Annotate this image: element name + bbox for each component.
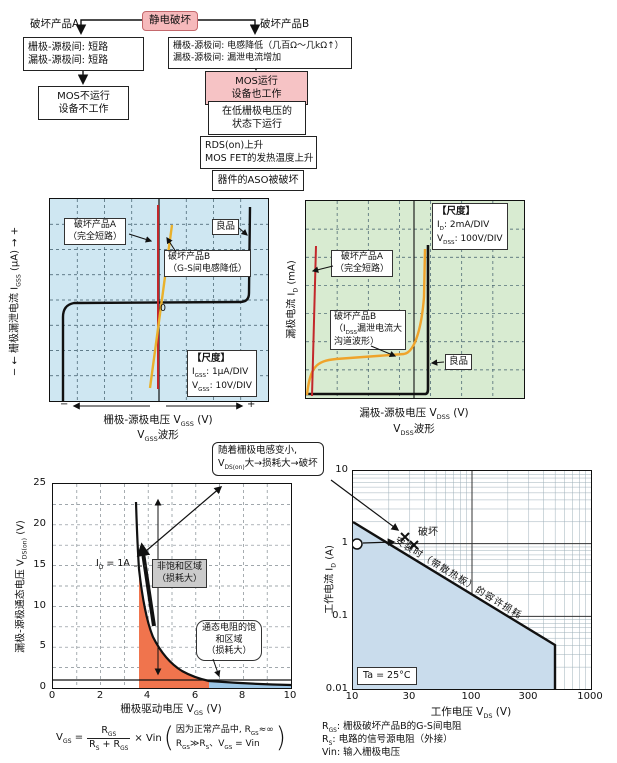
x-tick: 0 bbox=[42, 690, 62, 701]
scale-row2: VDSS: 100V/DIV bbox=[437, 233, 503, 247]
drain-waveform-label: VDSS波形 bbox=[305, 421, 523, 437]
y-tick: 10 bbox=[322, 464, 348, 475]
gate-product-b-label: 破坏产品B （G-S间电感降低） bbox=[164, 250, 251, 277]
gate-zero-label: 0 bbox=[160, 303, 166, 314]
drain-scale-box: 【尺度】 ID: 2mA/DIV VDSS: 100V/DIV bbox=[432, 203, 508, 250]
soa-y-axis-label: 工作电流 ID (A) bbox=[321, 480, 338, 680]
x-tick: 10 bbox=[337, 691, 367, 702]
flow-box-a1-line1: 栅极-源极间: 短路 bbox=[28, 41, 139, 54]
paren-open: ( bbox=[164, 726, 174, 751]
vgs-formula: VGS = RGS RS + RGS × Vin ( 因为正常产品中, RGS≈… bbox=[56, 724, 288, 753]
gate-x-axis-label: 栅极-源极电压 VGSS (V) bbox=[49, 412, 267, 428]
x-tick: 10 bbox=[280, 690, 300, 701]
x-tick: 30 bbox=[394, 691, 424, 702]
x-tick: 300 bbox=[513, 691, 543, 702]
x-tick: 100 bbox=[456, 691, 486, 702]
figure-esd-damage-mosfet: { "flowchart": { "trigger": "静电破坏", "bra… bbox=[0, 0, 617, 763]
flow-box-b1: 栅极-源极间: 电感降低（几百Ω～几kΩ↑） 漏极-源极间: 漏泄电流增加 bbox=[168, 37, 352, 69]
x-tick: 6 bbox=[185, 690, 205, 701]
flow-box-b1-line1: 栅极-源极间: 电感降低（几百Ω～几kΩ↑） bbox=[173, 41, 347, 53]
gate-product-a-line2: （完全短路） bbox=[68, 232, 122, 244]
flow-box-b5-line1: 器件的ASO被破坏 bbox=[217, 174, 299, 187]
formula-fraction: RGS RS + RGS bbox=[87, 725, 130, 752]
gate-product-b-line1: 破坏产品B bbox=[168, 252, 247, 264]
scale-title: 【尺度】 bbox=[437, 206, 503, 219]
gate-waveform-label: VGSS波形 bbox=[49, 427, 267, 443]
formula-rhs: × Vin bbox=[134, 733, 161, 744]
drain-product-a-line1: 破坏产品A bbox=[335, 252, 389, 264]
loss-callout: 随着栅极电感变小, VDS(on)大→损耗大→破坏 bbox=[212, 442, 324, 476]
y-tick: 10 bbox=[30, 600, 46, 611]
legend-vin: Vin: 输入栅极电压 bbox=[322, 744, 400, 760]
drain-good-label: 良品 bbox=[445, 354, 472, 370]
scale-title: 【尺度】 bbox=[192, 353, 252, 366]
branch-b-label: 破坏产品B bbox=[260, 16, 309, 31]
flow-box-a1-line2: 漏极-源极间: 短路 bbox=[28, 54, 139, 67]
scale-row1: IGSS: 1μA/DIV bbox=[192, 366, 252, 380]
y-tick: 15 bbox=[30, 559, 46, 570]
scale-row1: ID: 2mA/DIV bbox=[437, 219, 503, 233]
drain-product-a-line2: （完全短路） bbox=[335, 264, 389, 276]
branch-a-label: 破坏产品A bbox=[30, 16, 79, 31]
flow-box-a1: 栅极-源极间: 短路 漏极-源极间: 短路 bbox=[23, 37, 144, 71]
gate-y-axis-label: − ← 栅极漏泄电流 IGSS (μA) → + bbox=[6, 202, 23, 402]
flow-box-b5: 器件的ASO被破坏 bbox=[212, 170, 304, 191]
gate-scale-box: 【尺度】 IGSS: 1μA/DIV VGSS: 10V/DIV bbox=[187, 350, 257, 397]
soa-region-fill bbox=[353, 522, 555, 689]
drain-x-axis-label: 漏极-源极电压 VDSS (V) bbox=[305, 405, 523, 421]
product-a-trace bbox=[312, 246, 316, 396]
y-tick: 25 bbox=[30, 477, 46, 488]
gate-product-a-line1: 破坏产品A bbox=[68, 220, 122, 232]
id-1a-label: ID = 1A bbox=[96, 558, 130, 571]
gate-product-a-label: 破坏产品A （完全短路） bbox=[64, 218, 126, 245]
gate-product-b-line2: （G-S间电感降低） bbox=[168, 264, 247, 276]
flow-trigger-box: 静电破坏 bbox=[142, 11, 198, 31]
formula-notes: 因为正常产品中, RGS≈∞ RGS≫RS、VGS = Vin bbox=[176, 724, 274, 753]
vdson-x-axis-label: 栅极驱动电压 VGS (V) bbox=[52, 701, 290, 717]
operating-point-marker bbox=[353, 539, 362, 549]
flow-box-b1-line2: 漏极-源极间: 漏泄电流增加 bbox=[173, 53, 347, 65]
drain-product-b-line1: 破坏产品B bbox=[334, 312, 402, 324]
soa-ta-label: Ta = 25°C bbox=[357, 667, 417, 685]
x-tick: 8 bbox=[232, 690, 252, 701]
soa-limit-line bbox=[353, 522, 555, 689]
flow-box-a2-line1: MOS不运行 bbox=[43, 90, 124, 103]
drain-y-axis-label: 漏极电流 ID (mA) bbox=[283, 200, 300, 400]
y-tick: 5 bbox=[30, 640, 46, 651]
flow-box-b4-line2: MOS FET的发热温度上升 bbox=[205, 153, 312, 166]
flow-box-b2-line2: 设备也工作 bbox=[210, 88, 303, 101]
saturation-region-fill bbox=[209, 681, 291, 688]
y-tick: 20 bbox=[30, 518, 46, 529]
drain-product-b-line3: 沟道波形） bbox=[334, 337, 402, 349]
flow-box-b3-line1: 在低栅极电压的 bbox=[213, 105, 301, 118]
gate-good-label: 良品 bbox=[212, 219, 239, 235]
unsaturated-region-label: 非饱和区域 （损耗大） bbox=[152, 559, 207, 588]
flow-box-b4: RDS(on)上升 MOS FET的发热温度上升 bbox=[200, 136, 317, 169]
flow-box-b2-line1: MOS运行 bbox=[210, 75, 303, 88]
drain-product-a-label: 破坏产品A （完全短路） bbox=[331, 250, 393, 277]
flow-box-a2-line2: 设备不工作 bbox=[43, 103, 124, 116]
gate-x-minus: − bbox=[60, 399, 68, 410]
soa-break-label: 破坏 bbox=[418, 523, 438, 538]
vdson-y-axis-label: 漏极-源极通态电压 VDS(on) (V) bbox=[12, 487, 29, 687]
drain-product-b-label: 破坏产品B （IDSS漏泄电流大 沟道波形） bbox=[330, 310, 406, 350]
x-tick: 2 bbox=[90, 690, 110, 701]
flow-box-b3-line2: 状态下运行 bbox=[213, 118, 301, 131]
x-tick: 1000 bbox=[572, 691, 608, 702]
flow-trigger-label: 静电破坏 bbox=[149, 14, 191, 26]
flow-box-b4-line1: RDS(on)上升 bbox=[205, 140, 312, 153]
drain-product-b-line2: （IDSS漏泄电流大 bbox=[334, 324, 402, 337]
gate-x-plus: + bbox=[247, 399, 255, 410]
formula-lhs: VGS = bbox=[56, 732, 83, 745]
x-tick: 4 bbox=[137, 690, 157, 701]
scale-row2: VGSS: 10V/DIV bbox=[192, 380, 252, 394]
paren-close: ) bbox=[276, 726, 286, 751]
flow-box-b3: 在低栅极电压的 状态下运行 bbox=[208, 101, 306, 135]
flow-box-a2: MOS不运行 设备不工作 bbox=[38, 86, 129, 120]
saturation-region-label: 通态电阻的饱 和区域 （损耗大） bbox=[196, 620, 262, 661]
